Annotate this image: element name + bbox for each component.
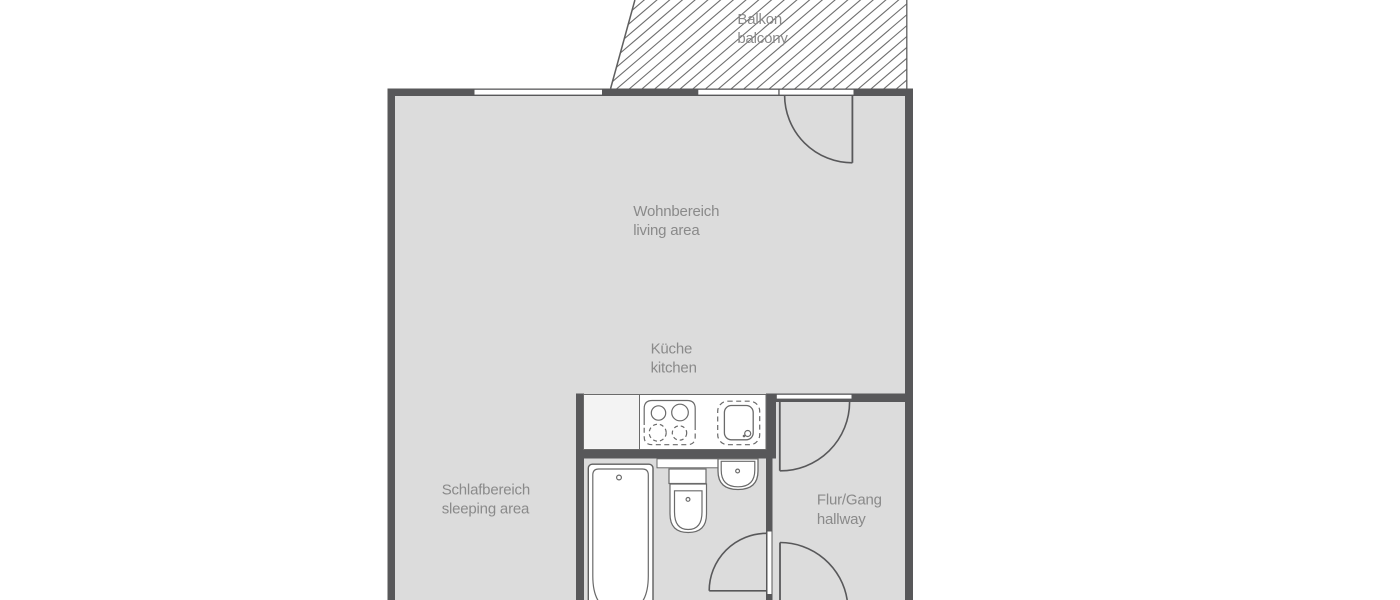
svg-text:Flur/Gang: Flur/Gang — [817, 492, 882, 509]
svg-text:Balkon: Balkon — [737, 11, 782, 28]
svg-text:kitchen: kitchen — [651, 360, 697, 377]
svg-text:living area: living area — [633, 222, 700, 239]
svg-text:Schlafbereich: Schlafbereich — [442, 481, 530, 498]
svg-text:sleeping area: sleeping area — [442, 501, 530, 518]
svg-text:hallway: hallway — [817, 511, 866, 528]
svg-text:balcony: balcony — [737, 30, 788, 47]
svg-text:Küche: Küche — [651, 341, 693, 358]
svg-text:Wohnbereich: Wohnbereich — [633, 203, 719, 220]
